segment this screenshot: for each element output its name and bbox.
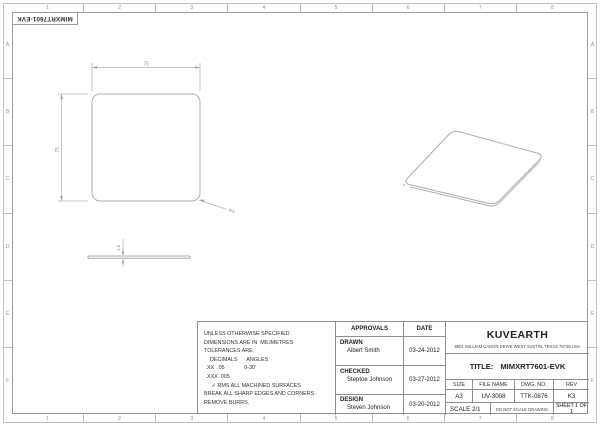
- size-value: A3: [446, 390, 473, 403]
- note-line: ✓ RMS ALL MACHINED SURFACES: [204, 382, 333, 391]
- approval-date-checked: 03-27-2012: [404, 366, 446, 395]
- role-name: Steven Johnson: [340, 405, 403, 413]
- role-name: Steptoe Johnson: [340, 377, 403, 385]
- title-value: MIMXRT7601-EVK: [500, 362, 565, 371]
- date-header: DATE: [404, 322, 446, 337]
- front-view-plate: [92, 94, 200, 201]
- title-label: TITLE:: [470, 362, 494, 371]
- note-line: BREAK ALL SHARP EDGES AND CORNERS.: [204, 390, 333, 399]
- role-label: DESIGN: [340, 397, 403, 405]
- rev-value: K3: [554, 390, 589, 403]
- company-name: KUVEARTH: [487, 329, 549, 341]
- note-line: .XX .05 0-30': [204, 364, 333, 373]
- sheet-number: SHEET 1 OF 1: [554, 403, 589, 415]
- size-header: SIZE: [446, 380, 473, 390]
- approval-row-checked: CHECKED Steptoe Johnson: [336, 366, 404, 395]
- file-name-value: UV-3008: [473, 390, 515, 403]
- note-line: DECIMALS ANGLES: [204, 356, 333, 365]
- iso-view-plate: [404, 131, 541, 206]
- dwg-no-header: DWG. NO.: [515, 380, 554, 390]
- role-label: DRAWN: [340, 340, 403, 348]
- drawing-sheet: 1 2 3 4 5 6 7 8 1 2 3 4 5 6 7 8 A B C D …: [0, 0, 600, 426]
- approval-date-drawn: 03-24-2012: [404, 337, 446, 366]
- tolerance-notes: UNLESS OTHERWISE SPECIFIED DIMENSIONS AR…: [198, 322, 336, 415]
- note-line: UNLESS OTHERWISE SPECIFIED: [204, 330, 333, 339]
- dim-thickness: [122, 239, 125, 267]
- dim-width-value: 75: [143, 62, 149, 68]
- dim-thickness-value: 1.6: [116, 244, 121, 251]
- note-line: .XXX .005: [204, 373, 333, 382]
- approval-row-design: DESIGN Steven Johnson: [336, 395, 404, 415]
- approval-row-drawn: DRAWN Albert Smith: [336, 337, 404, 366]
- dwg-no-value: TTK-0876: [515, 390, 554, 403]
- file-name-header: FILE NAME: [473, 380, 515, 390]
- title-row: TITLE: MIMXRT7601-EVK: [446, 354, 589, 380]
- dim-radius-value: R3: [228, 208, 235, 215]
- dim-radius-leader: [199, 199, 227, 209]
- dim-height-value: 75: [55, 147, 61, 153]
- role-label: CHECKED: [340, 369, 403, 377]
- side-view-plate: [88, 256, 190, 258]
- scale-value: SCALE 2/1: [446, 403, 491, 415]
- approvals-header: APPROVALS: [336, 322, 404, 337]
- title-block: UNLESS OTHERWISE SPECIFIED DIMENSIONS AR…: [197, 321, 588, 414]
- role-name: Albert Smith: [340, 348, 403, 356]
- note-line: DIMENSIONS ARE IN MILIMETRES: [204, 339, 333, 348]
- company-block: KUVEARTH 9501 WILLIAM CANON DRIVE WEST A…: [446, 322, 589, 354]
- dim-height: [58, 94, 88, 201]
- approval-date-design: 03-20-2012: [404, 395, 446, 415]
- note-line: REMOVE BURRS.: [204, 399, 333, 408]
- note-line: TOLERANCES ARE:: [204, 347, 333, 356]
- do-not-scale-note: DO NOT SCALE DRAWING: [491, 403, 554, 415]
- rev-header: REV: [554, 380, 589, 390]
- company-address: 9501 WILLIAM CANON DRIVE WEST AUSTIN, TE…: [455, 344, 581, 349]
